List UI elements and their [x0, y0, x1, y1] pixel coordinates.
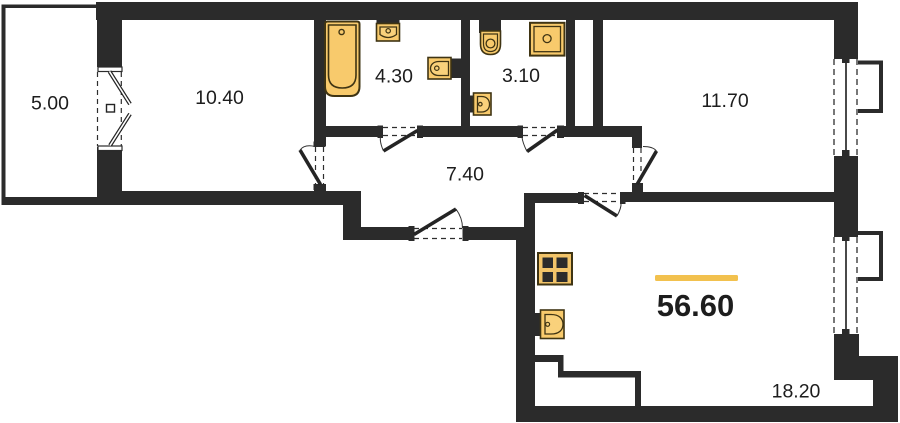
svg-text:18.20: 18.20: [772, 381, 821, 403]
svg-text:3.10: 3.10: [502, 65, 540, 87]
svg-text:5.00: 5.00: [31, 93, 69, 115]
svg-text:56.60: 56.60: [657, 288, 735, 323]
svg-text:11.70: 11.70: [701, 90, 749, 112]
svg-text:4.30: 4.30: [375, 66, 413, 88]
svg-text:10.40: 10.40: [195, 87, 244, 109]
svg-text:7.40: 7.40: [446, 164, 484, 186]
